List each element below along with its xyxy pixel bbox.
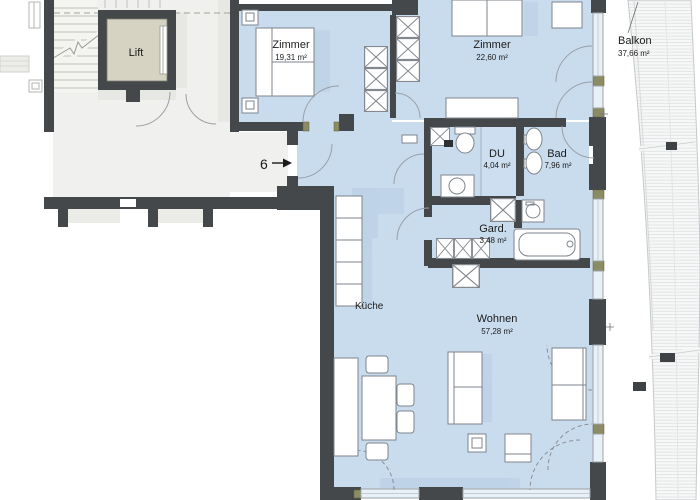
shadow [524, 2, 538, 36]
wall-segment [516, 127, 524, 196]
zimmer1-area: 19,31 m² [275, 53, 307, 62]
bed [452, 0, 487, 36]
wardrobe-cell [365, 69, 388, 90]
closet-cell [436, 239, 453, 259]
desk [552, 2, 582, 28]
wall-segment [287, 131, 298, 145]
closet-cell [453, 265, 480, 288]
chair [366, 356, 388, 373]
window-glass [593, 434, 603, 462]
zimmer1-label: Zimmer [272, 39, 310, 51]
facade-pillar [589, 299, 606, 345]
window-sill [0, 56, 29, 72]
du-area: 4,04 m² [483, 161, 510, 170]
washbasin [449, 178, 465, 194]
wall-stub [58, 209, 68, 227]
unit-number: 6 [260, 156, 268, 172]
facade-pillar [591, 0, 606, 13]
wall-stub [203, 209, 213, 227]
facade-pillar [590, 462, 606, 500]
chair [397, 384, 414, 406]
kitchen-counter-cell [336, 240, 362, 262]
zimmer2-area: 22,60 m² [476, 53, 508, 62]
wall-segment [320, 200, 334, 490]
cross-marker [606, 323, 614, 331]
corridor-entry-area [230, 132, 288, 192]
wardrobe-cell [365, 47, 388, 68]
balcony-post [660, 353, 675, 362]
wall-segment [44, 197, 278, 209]
wall-segment [230, 122, 303, 131]
wardrobe-cell [397, 39, 420, 60]
toilet [456, 133, 474, 153]
wardrobe-cell [397, 17, 420, 38]
chair [366, 443, 388, 460]
window-glass [593, 86, 603, 108]
sofa [552, 348, 586, 420]
shadow [380, 478, 520, 488]
pillar-notch [589, 146, 593, 164]
wall-segment [392, 0, 418, 15]
gard-area: 3,48 m² [479, 236, 506, 245]
wall-segment [390, 15, 396, 118]
wall-segment [424, 205, 432, 217]
balkon-area: 37,66 m² [618, 49, 650, 58]
washbasin [526, 152, 542, 174]
window-joint [593, 424, 604, 434]
closet-cell [454, 239, 471, 259]
nightstand [242, 10, 258, 25]
shadow [482, 354, 492, 422]
window-joint [593, 261, 604, 271]
wohnen-label: Wohnen [477, 313, 518, 325]
shadow [362, 198, 372, 304]
floor-plan: Lift Zimmer 19,31 m² Zimmer 22,60 m² Bal… [0, 0, 700, 500]
dresser [446, 98, 518, 118]
zimmer2-label: Zimmer [473, 39, 511, 51]
dining-table [362, 376, 396, 440]
hall-panel [402, 135, 417, 143]
wall-stub [148, 209, 158, 227]
balcony-post [666, 142, 677, 150]
left-facade-details [0, 2, 42, 92]
wall-segment [126, 90, 140, 102]
balkon-label: Balkon [618, 35, 652, 47]
kueche-label: Küche [355, 301, 384, 312]
wall-segment [339, 114, 354, 131]
closet-cell [491, 199, 516, 222]
window-joint [593, 108, 604, 117]
lift-door [160, 26, 167, 74]
wardrobe-cell [365, 91, 388, 112]
balcony [628, 0, 700, 500]
wall-segment [230, 0, 239, 132]
wall-segment [419, 487, 463, 500]
sideboard [334, 358, 358, 456]
lift-label: Lift [129, 47, 144, 59]
washing-machine [522, 200, 544, 222]
gard-label: Gard. [479, 223, 507, 235]
door-jamb [334, 122, 339, 131]
shadow [314, 30, 330, 92]
du-label: DU [489, 148, 505, 160]
sofa [448, 352, 482, 424]
kitchen-counter-cell [336, 196, 362, 218]
window [29, 80, 42, 92]
corridor-shadow [218, 0, 230, 122]
bad-area: 7,96 m² [544, 161, 571, 170]
window-glass [593, 271, 603, 299]
window-joint [593, 190, 604, 199]
floor-plan-drawing: Lift Zimmer 19,31 m² Zimmer 22,60 m² Bal… [0, 0, 700, 500]
armchair [505, 434, 531, 462]
bed [487, 0, 522, 36]
bad-label: Bad [547, 148, 567, 160]
wohnen-area: 57,28 m² [481, 327, 513, 336]
nightstand [242, 98, 258, 113]
wall-segment [424, 118, 566, 127]
balcony-post [633, 382, 646, 391]
wardrobe-cell [397, 61, 420, 82]
chair [397, 411, 414, 433]
window-joint [593, 76, 604, 86]
kitchen-counter-cell [336, 262, 362, 284]
window-joint [354, 490, 361, 498]
corridor-door-gap [120, 199, 136, 207]
washbasin [526, 128, 542, 150]
corridor-shadow [176, 12, 187, 88]
wall-segment [44, 0, 54, 132]
shaft-marker [444, 140, 453, 147]
wall-segment [287, 176, 298, 186]
side-table [468, 434, 486, 452]
door-jamb [303, 122, 309, 131]
wall-segment [239, 4, 392, 11]
kitchen-counter-cell [336, 218, 362, 240]
